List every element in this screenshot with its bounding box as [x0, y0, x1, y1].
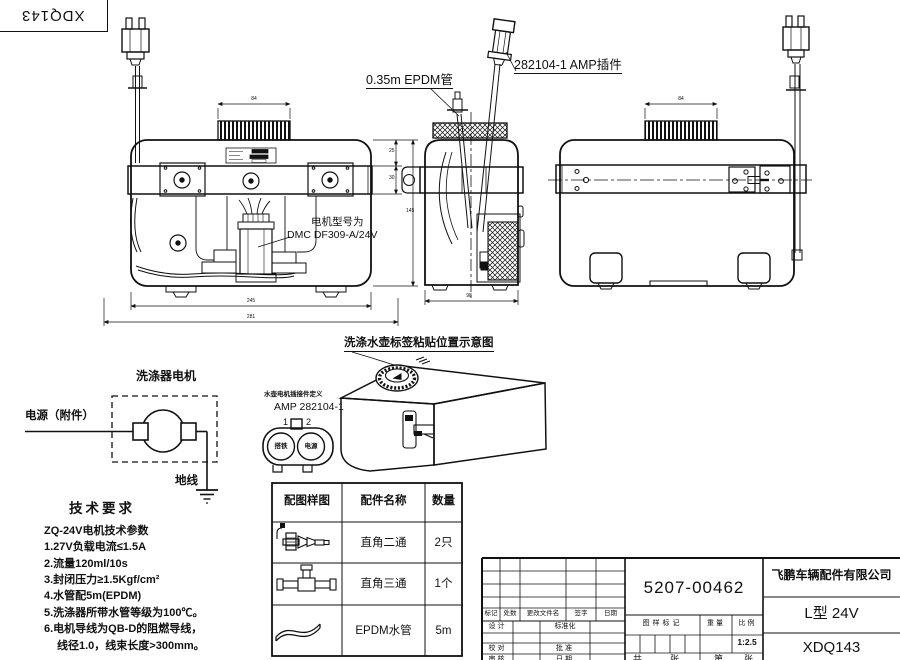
tank-3d-illustration [341, 352, 546, 471]
cap-3d [376, 365, 418, 391]
pin-1-number: 1 [283, 417, 288, 427]
drawing-line-art [0, 0, 900, 660]
filler-cap-rear [645, 121, 717, 140]
name-plate [226, 148, 276, 163]
drawing-code: XDQ143 [765, 639, 898, 656]
dim-front-inner: 245 [240, 299, 262, 304]
corner-code-box: XDQ143 [0, 0, 108, 32]
sheet-no-label: 第 [714, 654, 723, 660]
pump-3d [403, 411, 434, 448]
row-check: 校对 [482, 645, 513, 653]
pinout-definition: 水壶电机插接件定义 [264, 391, 323, 398]
tank-label-caption: 洗涤水壶标签粘贴位置示意图 [344, 337, 494, 352]
amp-plug-label: 282104-1 AMP插件 [514, 58, 622, 74]
mounting-band-front [128, 163, 372, 196]
row-review: 审核 [482, 656, 513, 660]
tech-line: 4.水管配5m(EPDM) [44, 590, 141, 603]
row-standardize: 标准化 [540, 623, 590, 631]
front-view [104, 18, 418, 326]
parts-header-sample: 配图样图 [272, 495, 342, 508]
tech-line: 6.电机导线为QB-D的阻燃导线， [44, 623, 202, 636]
rev-col-file: 更改文件名 [520, 610, 566, 617]
pinout-model: AMP 282104-1 [274, 401, 344, 413]
row-date: 日期 [540, 656, 590, 660]
rear-view [548, 16, 812, 289]
tee-fitting-icon [277, 565, 336, 591]
feet-front [166, 286, 346, 297]
tank-body-rear [560, 140, 794, 286]
mounting-band-rear [556, 165, 806, 193]
scale-header: 比例 [732, 620, 763, 628]
tech-line: 3.封闭压力≥1.5Kgf/cm² [44, 574, 159, 587]
wire-connector-front [122, 18, 149, 163]
cap-dimension-front [218, 104, 290, 119]
part-name: EPDM水管 [342, 625, 425, 638]
pin-1-name: 搭铁 [273, 443, 289, 450]
bracket-tab [402, 167, 420, 193]
part-qty: 2只 [425, 537, 462, 550]
filler-cap-side [433, 123, 507, 138]
dim-side-width: 98 [458, 294, 480, 299]
ground-label: 地线 [175, 475, 198, 488]
filler-cap-front [218, 121, 290, 140]
ground-symbol [196, 490, 218, 503]
side-view [402, 19, 524, 305]
dim-front-outer: 281 [240, 315, 262, 320]
pin-2-number: 2 [306, 417, 311, 427]
wire-connector-rear [783, 16, 809, 260]
parts-header-name: 配件名称 [342, 495, 425, 508]
tech-line: 线径1.0，线束长度>300mm。 [57, 640, 205, 653]
hose-icon [276, 624, 320, 641]
part-number: 5207-00462 [627, 578, 761, 598]
sheet-no-unit: 张 [744, 654, 753, 660]
dim-cap-front: 84 [243, 97, 265, 102]
rev-col-sign: 签字 [566, 610, 596, 617]
vent-detail-3d [416, 357, 430, 364]
scale-value: 1:2.5 [732, 638, 762, 648]
epdm-tube [447, 92, 472, 228]
part-qty: 5m [425, 625, 462, 638]
pin-2-name: 电源 [303, 443, 319, 450]
epdm-tube-label: 0.35m EPDM管 [366, 73, 453, 89]
row-design: 设计 [482, 623, 513, 631]
part-name: 直角二通 [342, 537, 425, 550]
power-label: 电源（附件） [25, 410, 94, 423]
tech-line: ZQ-24V电机技术参数 [44, 525, 149, 538]
model-designation: L型 24V [765, 605, 898, 622]
amp-connector [487, 19, 516, 67]
tech-line: 5.洗涤器所带水管等级为100℃。 [44, 607, 204, 620]
motor-model-label: 电机型号为 [311, 216, 364, 228]
parts-header-qty: 数量 [425, 495, 462, 508]
rev-col-count: 处数 [500, 610, 520, 617]
cap-dimension-rear [645, 104, 717, 119]
rev-col-mark: 标记 [482, 610, 500, 617]
part-name: 直角三通 [342, 578, 425, 591]
tech-line: 2.流量120ml/10s [44, 558, 128, 571]
mark-header: 图样标记 [625, 620, 700, 628]
company-name: 飞鹏车辆配件有限公司 [765, 569, 898, 583]
amp-cable [477, 64, 500, 232]
tank-body-front [131, 140, 371, 286]
tech-title: 技术要求 [69, 501, 135, 517]
row-approve: 批准 [540, 645, 590, 653]
dim-body-height: 145 [406, 209, 414, 214]
feet-rear [590, 253, 770, 289]
dim-bracket-top: 25 [389, 149, 395, 154]
dim-cap-rear: 84 [670, 97, 692, 102]
part-qty: 1个 [425, 578, 462, 591]
weight-header: 重量 [700, 620, 732, 628]
motor-model-value: DMC DF309-A/24V [287, 229, 377, 241]
sheet-total-unit: 张 [670, 654, 679, 660]
sheet-total-label: 共 [633, 654, 642, 660]
tech-line: 1.27V负载电流≤1.5A [44, 541, 146, 554]
engineering-drawing-sheet: XDQ143 0.35m EPDM管 282104-1 AMP插件 电机型号为 … [0, 0, 900, 660]
dim-bracket-band: 30 [389, 176, 395, 181]
rev-col-date: 日期 [596, 610, 625, 617]
corner-code: XDQ143 [21, 7, 85, 24]
elbow-fitting-icon [277, 523, 329, 550]
circuit-title: 洗涤器电机 [136, 370, 196, 384]
